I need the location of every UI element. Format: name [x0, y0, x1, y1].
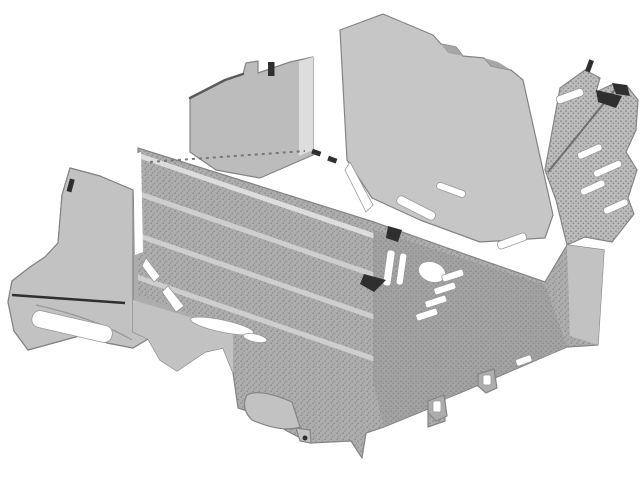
bracket-tick-mark [585, 59, 594, 72]
wall-edge-highlight [299, 57, 313, 156]
illustration-page [0, 0, 640, 480]
core-top-speck [327, 156, 337, 164]
hvac-housing-illustration [0, 0, 640, 480]
pod-dot [303, 436, 308, 441]
wall-tick-mark [268, 62, 275, 76]
top-lid-panel [340, 14, 553, 242]
clip-tab-hole [433, 401, 441, 412]
clip-tab-hole [483, 375, 491, 385]
right-side-strip [567, 245, 604, 345]
left-mounting-bracket [8, 168, 148, 350]
pod-tab [296, 428, 311, 443]
